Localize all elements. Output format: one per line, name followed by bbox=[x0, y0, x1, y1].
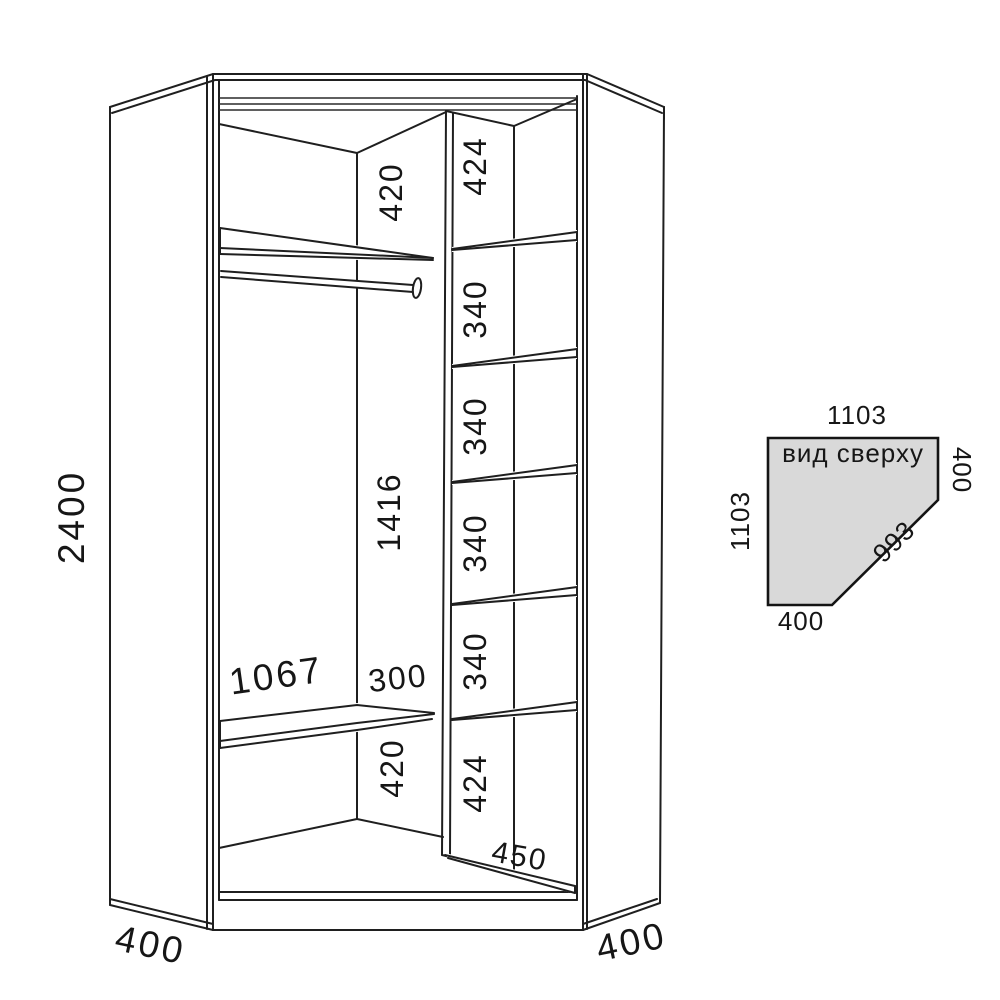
top-view: вид сверху 1103 1103 400 993 400 bbox=[725, 400, 977, 636]
top-view-caption: вид сверху bbox=[782, 438, 924, 468]
dim-column-section-3: 340 bbox=[457, 396, 493, 455]
dim-column-section-4: 340 bbox=[457, 513, 493, 572]
corner-wardrobe-technical-drawing: 2400 420 1416 420 1067 300 450 400 400 4… bbox=[0, 0, 1000, 1000]
dim-top-view-left-depth: 1103 bbox=[725, 491, 755, 551]
drawing-canvas: 2400 420 1416 420 1067 300 450 400 400 4… bbox=[0, 0, 1000, 1000]
dim-shelf-offset: 300 bbox=[366, 657, 429, 699]
dim-bottom-gap: 420 bbox=[374, 738, 410, 797]
dim-top-view-bottom-side: 400 bbox=[778, 606, 824, 636]
dim-column-section-6: 424 bbox=[457, 753, 493, 812]
dim-side-depth-left: 400 bbox=[112, 917, 190, 972]
dim-top-view-right-side: 400 bbox=[947, 447, 977, 493]
dim-overall-height: 2400 bbox=[51, 470, 92, 564]
dim-top-gap: 420 bbox=[373, 162, 409, 221]
dim-top-view-width: 1103 bbox=[827, 400, 887, 430]
dim-column-section-5: 340 bbox=[457, 631, 493, 690]
dim-shelf-width: 1067 bbox=[227, 649, 326, 703]
dim-rod-section: 1416 bbox=[371, 472, 407, 551]
top-shelf bbox=[220, 226, 433, 262]
dim-column-section-1: 424 bbox=[457, 136, 493, 195]
hanging-rod bbox=[221, 271, 422, 298]
dim-column-section-2: 340 bbox=[457, 279, 493, 338]
